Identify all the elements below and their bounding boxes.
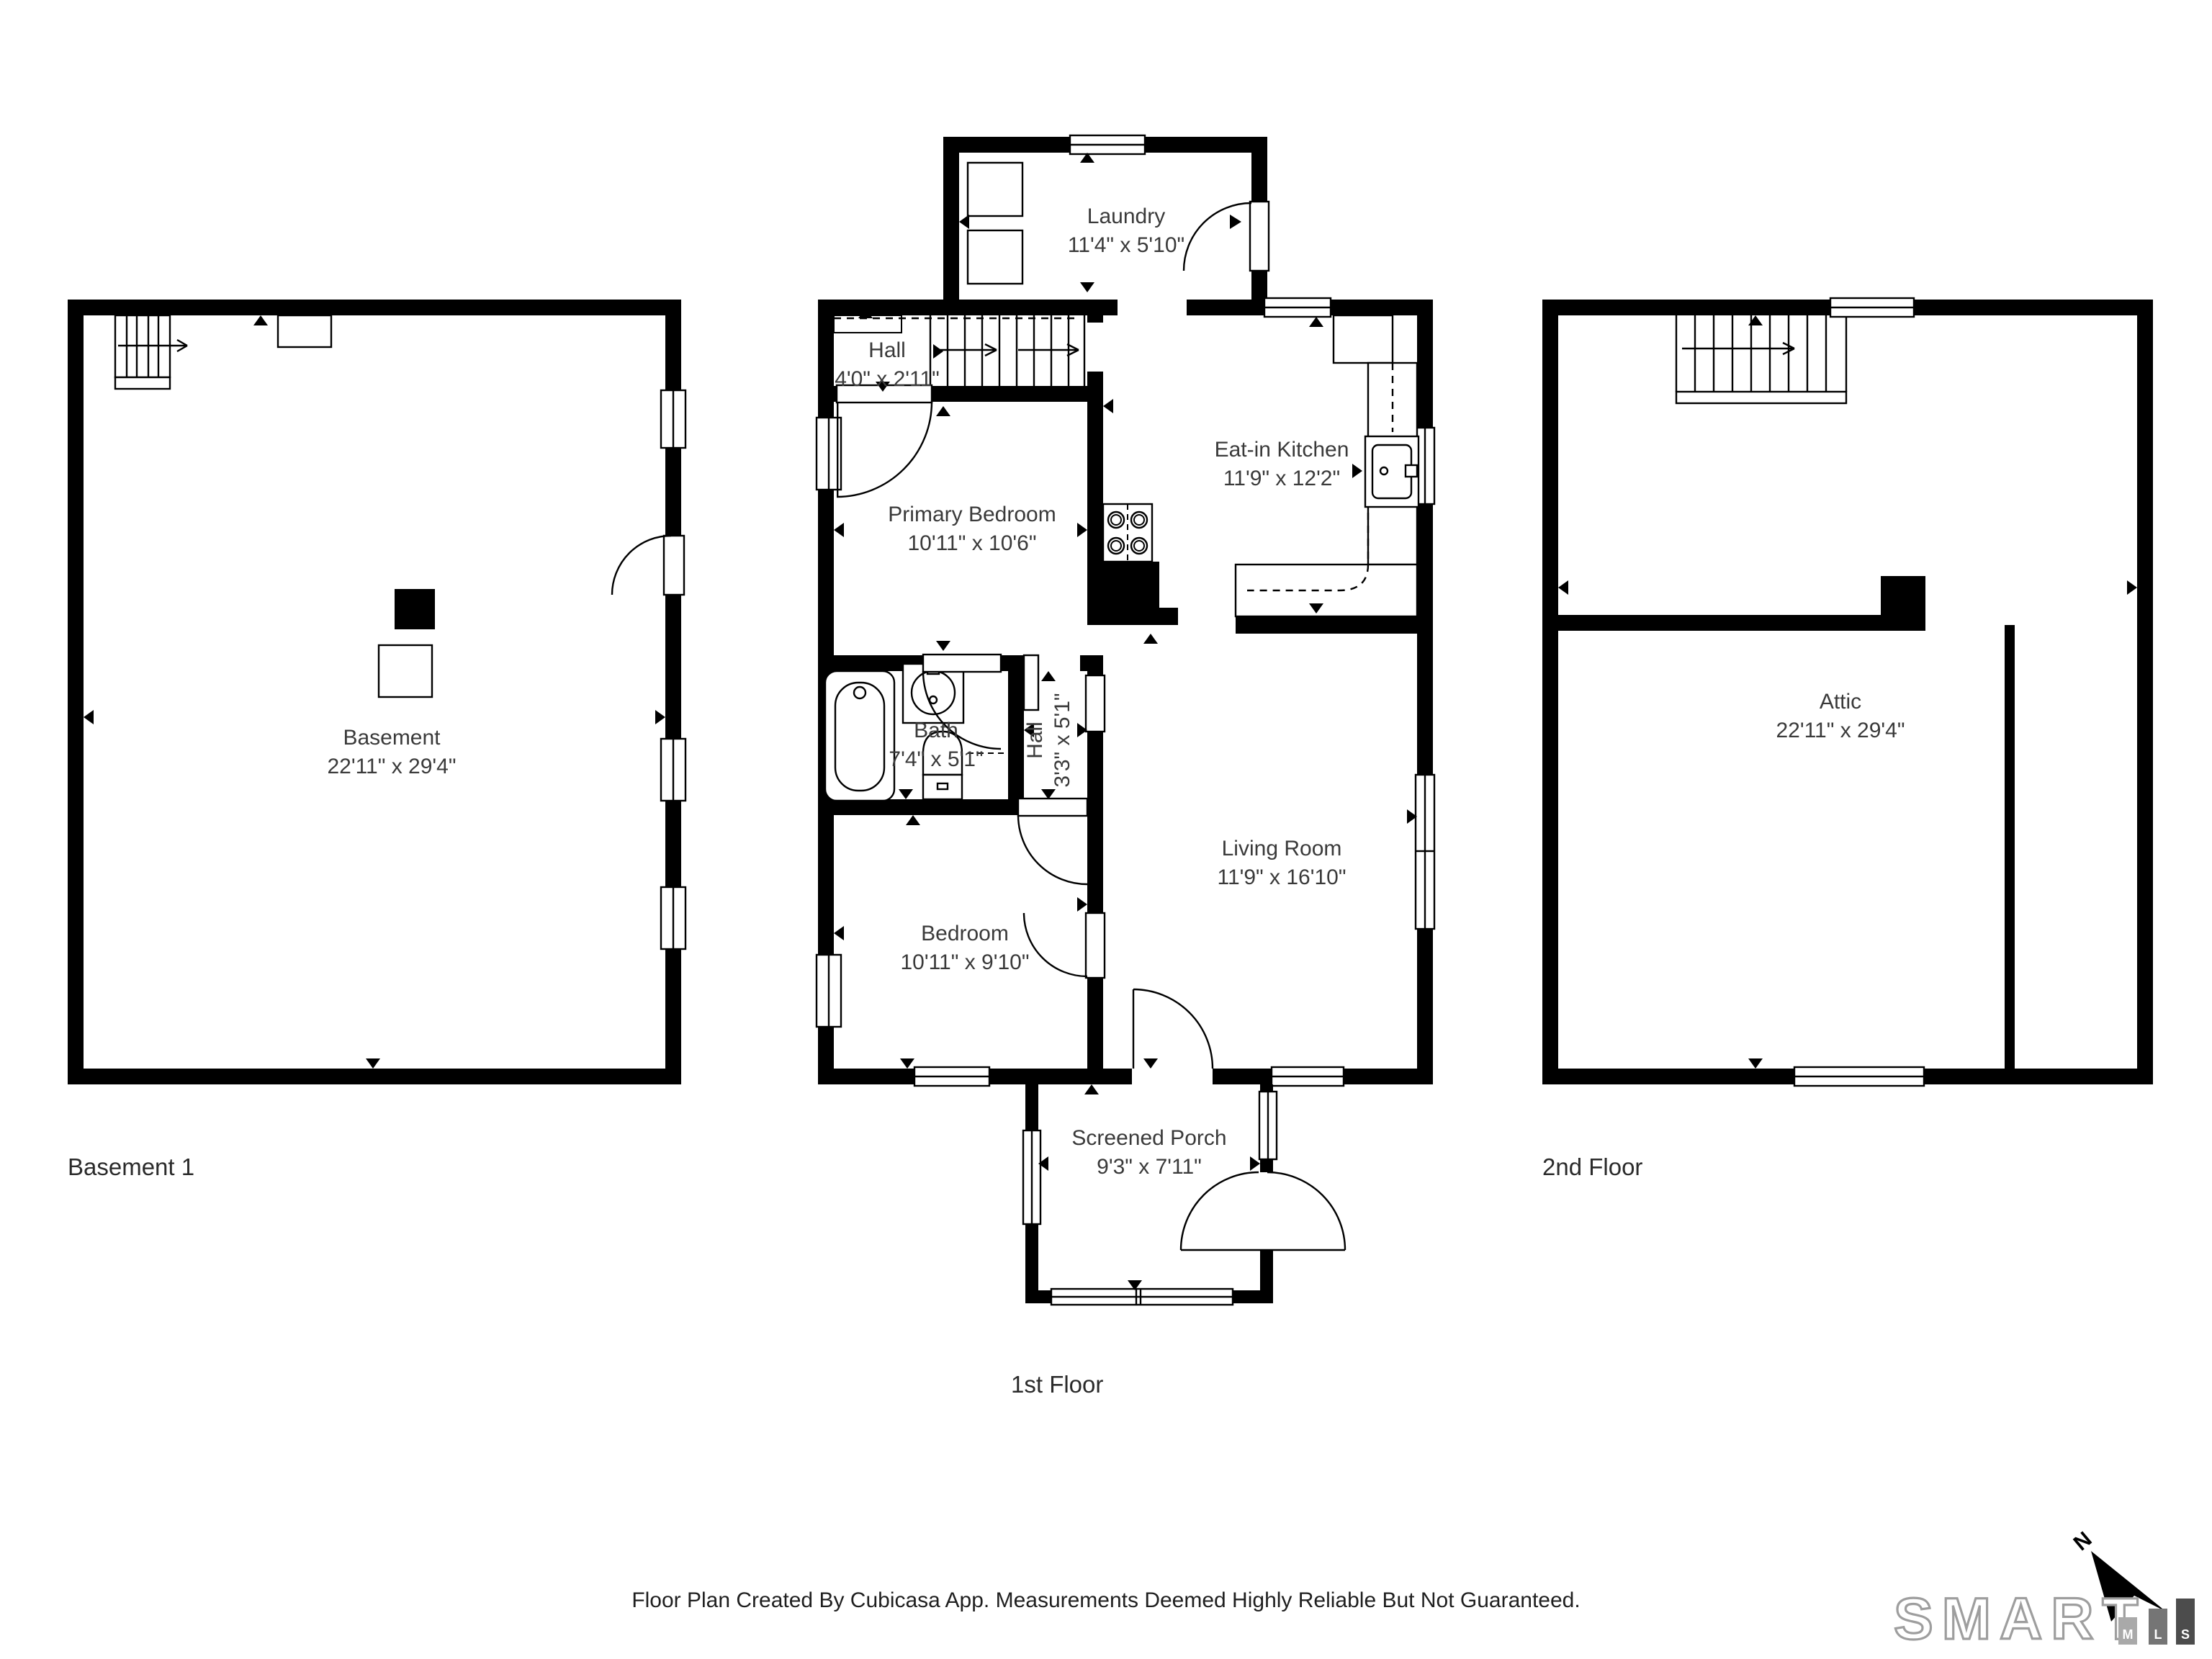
room-label-bath: Bath 7'4" x 5'1" [889,717,983,775]
attic-chimney [1881,576,1925,631]
room-dims: 11'9" x 16'10" [1218,864,1346,893]
room-name: Screened Porch [1071,1125,1226,1154]
room-dims: 10'11" x 10'6" [888,530,1056,559]
living-bedroom-door-icon [1024,913,1105,978]
room-label-hall-upper: Hall 4'0" x 2'11" [835,337,940,395]
primary-bedroom-door-icon [837,385,932,497]
basement-door-icon [612,536,684,595]
room-label-laundry: Laundry 11'4" x 5'10" [1068,203,1184,261]
room-label-kitchen: Eat-in Kitchen 11'9" x 12'2" [1215,436,1349,494]
basement-stairs-icon [115,315,187,389]
kitchen-sink-icon [1365,436,1419,507]
room-label-screened-porch: Screened Porch 9'3" x 7'11" [1071,1125,1226,1182]
smartmls-logo: SMART [1894,1590,2147,1649]
room-dims: 3'3" x 5'1" [1051,693,1075,787]
floor-label-first: 1st Floor [1011,1372,1103,1400]
bathtub-icon [825,671,894,801]
screened-porch-structure [1025,1084,1273,1303]
second-floor-stairs-icon [1676,315,1846,403]
floor-label-basement: Basement 1 [68,1155,194,1182]
room-name: Attic [1776,688,1905,717]
room-dims: 22'11" x 29'4" [1776,717,1905,746]
room-dims: 11'4" x 5'10" [1068,232,1184,261]
room-name: Hall [1023,721,1048,759]
floor-label-second: 2nd Floor [1542,1155,1642,1182]
room-label-basement: Basement 22'11" x 29'4" [328,724,457,782]
room-name: Primary Bedroom [888,501,1056,530]
mls-bar-l: L [2149,1609,2167,1645]
room-name: Eat-in Kitchen [1215,436,1349,465]
porch-windows [1023,1092,1277,1305]
dryer-icon [968,230,1022,284]
room-label-living-room: Living Room 11'9" x 16'10" [1218,835,1346,893]
chimney [1087,562,1159,625]
hall-living-doorway [1086,675,1105,732]
room-label-primary-bedroom: Primary Bedroom 10'11" x 10'6" [888,501,1056,559]
room-dims: 10'11" x 9'10" [901,949,1030,978]
floorplan-page: Basement 22'11" x 29'4" Laundry 11'4" x … [0,0,2212,1659]
mls-bar-s: S [2176,1599,2195,1645]
basement-chimney [395,589,435,629]
basement-plan [68,300,685,1084]
laundry-door-icon [1184,202,1269,271]
hall-door-leaf [1024,655,1038,710]
washer-icon [968,163,1022,216]
room-name: Hall [835,337,940,366]
basement-opening [278,315,331,347]
disclaimer-text: Floor Plan Created By Cubicasa App. Meas… [0,1588,2212,1613]
room-name: Basement [328,724,457,753]
room-dims: 7'4" x 5'1" [889,746,983,775]
room-dims: 9'3" x 7'11" [1071,1154,1226,1182]
stove-icon [1103,504,1152,562]
room-dims: 11'9" x 12'2" [1215,465,1349,494]
hall-bedroom-door-icon [1018,799,1087,884]
basement-dimension-markers [84,315,665,1069]
refrigerator-icon [1334,315,1393,363]
room-name: Bedroom [901,920,1030,949]
room-name: Bath [889,717,983,746]
basement-box [379,645,432,697]
room-name: Living Room [1218,835,1346,864]
room-name: Laundry [1068,203,1184,232]
mls-bar-m: M [2118,1617,2137,1645]
room-dims: 4'0" x 2'11" [835,366,940,395]
room-label-attic: Attic 22'11" x 29'4" [1776,688,1905,746]
attic-knee-wall [2005,625,2015,1069]
first-floor-stairs-icon [930,315,1084,386]
room-label-bedroom: Bedroom 10'11" x 9'10" [901,920,1030,978]
room-dims: 22'11" x 29'4" [328,753,457,782]
porch-entry-door-icon [1133,989,1213,1069]
